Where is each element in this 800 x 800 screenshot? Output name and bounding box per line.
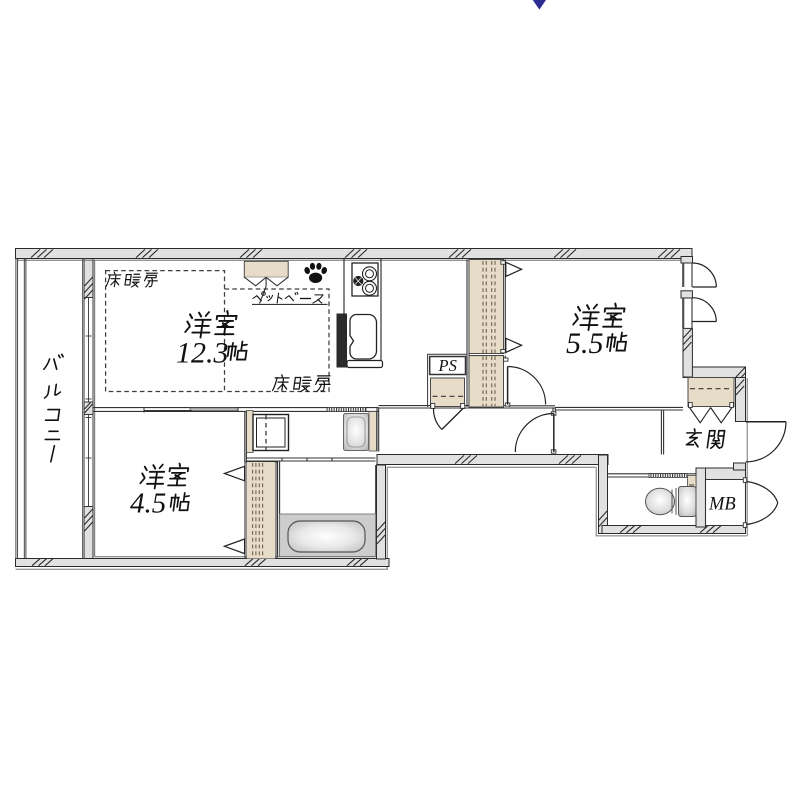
svg-text:12.3: 12.3 [176, 337, 229, 370]
svg-text:5.5: 5.5 [566, 327, 604, 360]
svg-text:4.5: 4.5 [130, 488, 166, 520]
svg-text:MB: MB [708, 495, 736, 515]
svg-text:PS: PS [438, 356, 457, 375]
